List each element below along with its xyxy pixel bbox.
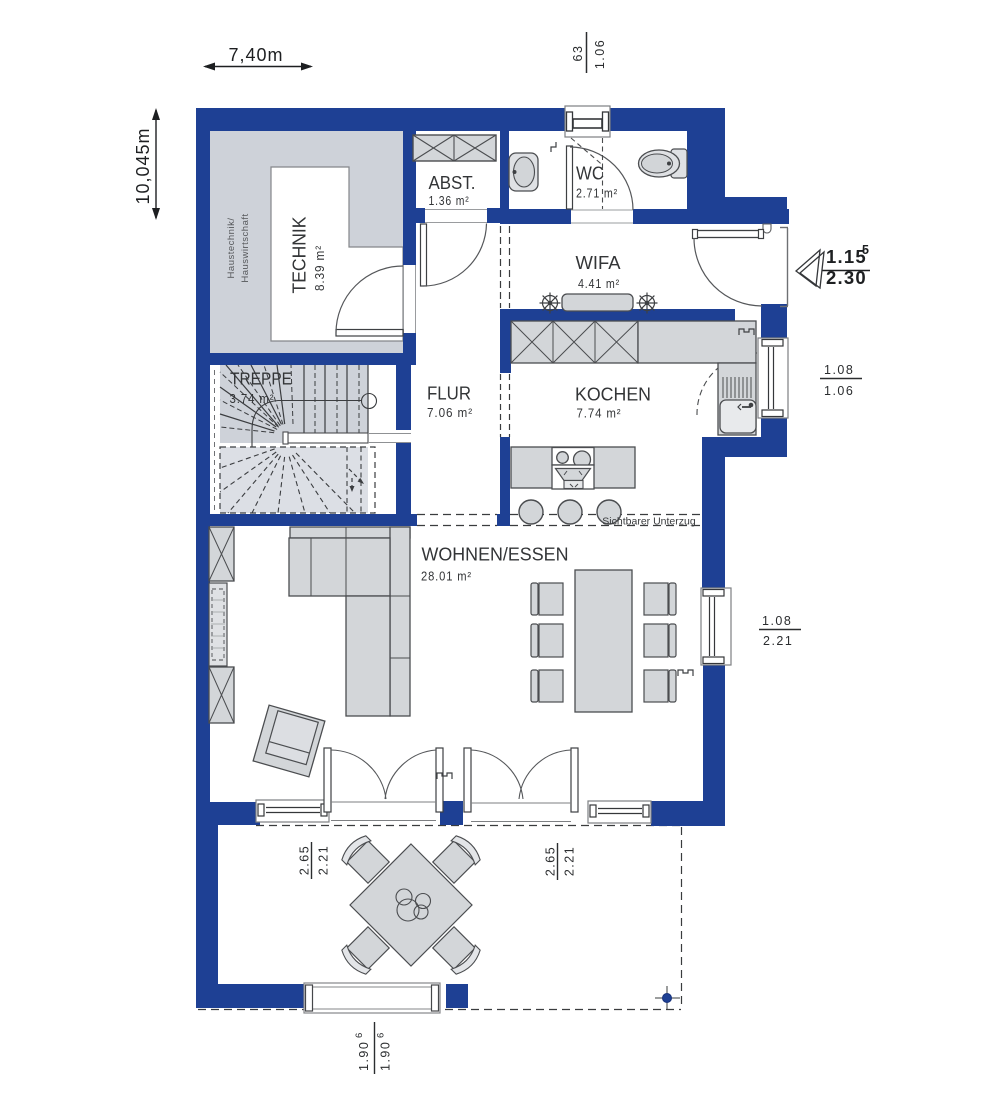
svg-text:FLUR: FLUR	[427, 383, 471, 404]
svg-text:10,045m: 10,045m	[133, 127, 153, 204]
svg-text:2.21: 2.21	[563, 846, 577, 876]
svg-text:Haustechnik/: Haustechnik/	[226, 218, 237, 279]
svg-text:1.36 m²: 1.36 m²	[429, 193, 470, 208]
svg-text:7.74 m²: 7.74 m²	[577, 406, 622, 421]
svg-text:WIFA: WIFA	[576, 252, 622, 273]
svg-text:1.15: 1.15	[826, 246, 867, 267]
svg-text:8.39 m²: 8.39 m²	[312, 245, 327, 291]
svg-text:1.06: 1.06	[824, 384, 854, 398]
svg-text:2.65: 2.65	[544, 846, 558, 876]
svg-text:7,40m: 7,40m	[228, 45, 283, 65]
svg-text:63: 63	[571, 45, 585, 62]
svg-text:2.21: 2.21	[317, 845, 331, 875]
svg-text:2.71 m²: 2.71 m²	[576, 186, 618, 201]
svg-text:5: 5	[862, 243, 869, 257]
svg-text:Sichtbarer Unterzug: Sichtbarer Unterzug	[602, 516, 696, 528]
svg-text:3.74 m²: 3.74 m²	[230, 391, 275, 406]
svg-text:WOHNEN/ESSEN: WOHNEN/ESSEN	[422, 544, 569, 565]
svg-text:6: 6	[376, 1033, 387, 1038]
svg-text:7.06 m²: 7.06 m²	[427, 405, 473, 420]
svg-text:TREPPE: TREPPE	[230, 369, 292, 389]
svg-text:Hauswirtschaft: Hauswirtschaft	[240, 213, 251, 282]
svg-text:1.08: 1.08	[824, 363, 854, 377]
svg-text:WC: WC	[576, 163, 604, 184]
svg-text:6: 6	[354, 1033, 365, 1038]
svg-text:2.21: 2.21	[763, 634, 793, 648]
svg-text:1.08: 1.08	[762, 614, 792, 628]
svg-text:2.30: 2.30	[826, 267, 867, 288]
svg-text:4.41 m²: 4.41 m²	[578, 276, 620, 291]
svg-text:TECHNIK: TECHNIK	[289, 216, 310, 294]
svg-text:1.90: 1.90	[357, 1041, 371, 1071]
svg-text:1.06: 1.06	[593, 39, 607, 69]
svg-text:1.90: 1.90	[379, 1041, 393, 1071]
svg-text:28.01 m²: 28.01 m²	[421, 569, 472, 584]
svg-text:ABST.: ABST.	[429, 172, 476, 193]
svg-text:KOCHEN: KOCHEN	[575, 384, 651, 405]
svg-text:2.65: 2.65	[298, 845, 312, 875]
